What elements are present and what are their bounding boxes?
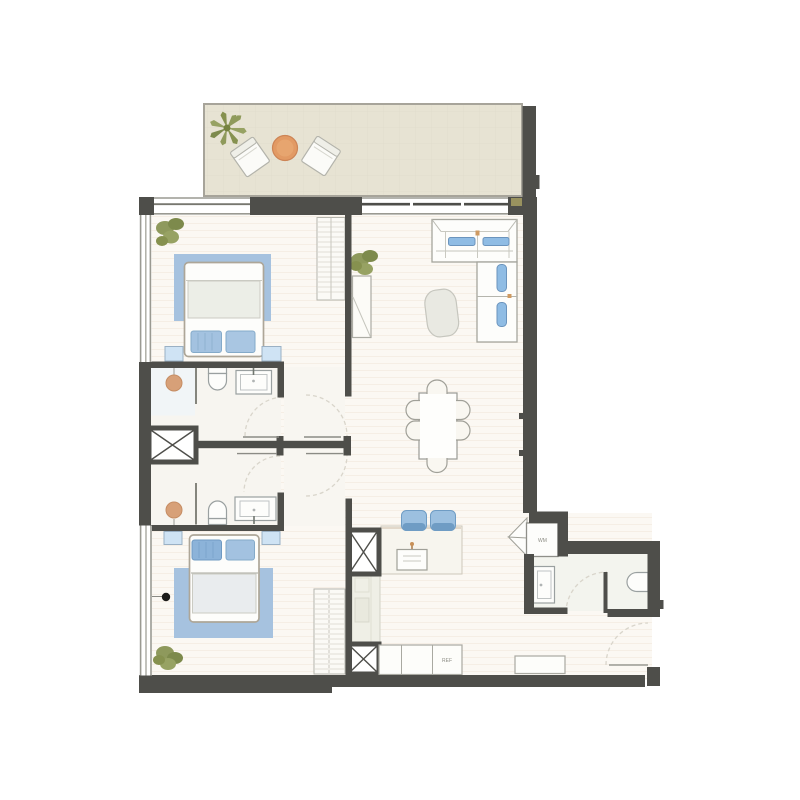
svg-text:REF: REF [442, 658, 452, 664]
svg-text:WM: WM [538, 538, 547, 544]
